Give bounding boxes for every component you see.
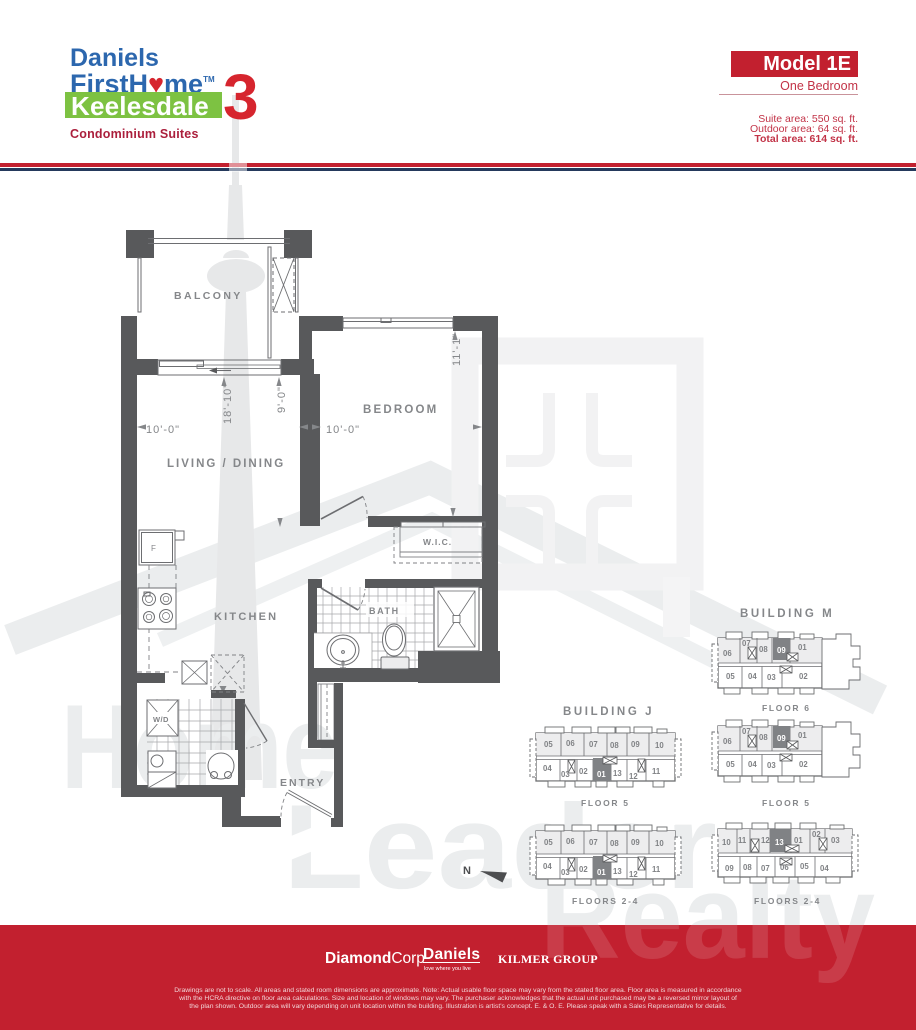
svg-text:04: 04 bbox=[820, 864, 829, 873]
svg-text:09: 09 bbox=[725, 864, 734, 873]
svg-text:KITCHEN: KITCHEN bbox=[214, 611, 278, 623]
svg-text:07: 07 bbox=[761, 864, 770, 873]
svg-text:05: 05 bbox=[800, 862, 809, 871]
svg-text:18'-10": 18'-10" bbox=[222, 383, 234, 424]
svg-text:BUILDING M: BUILDING M bbox=[740, 608, 834, 620]
svg-text:BUILDING J: BUILDING J bbox=[563, 706, 654, 718]
svg-text:FLOORS 2-4: FLOORS 2-4 bbox=[754, 896, 821, 906]
svg-text:FLOORS 2-4: FLOORS 2-4 bbox=[572, 896, 639, 906]
svg-text:FLOOR 6: FLOOR 6 bbox=[762, 703, 811, 713]
svg-text:12: 12 bbox=[761, 836, 770, 845]
svg-text:FLOOR 5: FLOOR 5 bbox=[762, 798, 811, 808]
svg-text:10'-0": 10'-0" bbox=[326, 424, 360, 436]
svg-text:08: 08 bbox=[743, 863, 752, 872]
svg-text:9'-0": 9'-0" bbox=[276, 386, 288, 413]
svg-text:11'-1": 11'-1" bbox=[451, 333, 463, 366]
svg-text:LIVING / DINING: LIVING / DINING bbox=[167, 458, 285, 470]
svg-text:10: 10 bbox=[722, 838, 731, 847]
svg-text:W/D: W/D bbox=[153, 715, 169, 724]
svg-text:11: 11 bbox=[738, 836, 747, 845]
svg-text:N: N bbox=[463, 865, 471, 877]
svg-text:02: 02 bbox=[812, 830, 821, 839]
svg-text:BEDROOM: BEDROOM bbox=[363, 404, 438, 416]
svg-text:03: 03 bbox=[831, 836, 840, 845]
svg-text:BALCONY: BALCONY bbox=[174, 290, 243, 302]
svg-text:W.I.C.: W.I.C. bbox=[423, 537, 452, 547]
svg-text:01: 01 bbox=[794, 836, 803, 845]
svg-text:F: F bbox=[151, 544, 156, 553]
svg-text:FLOOR 5: FLOOR 5 bbox=[581, 798, 630, 808]
svg-text:13: 13 bbox=[775, 838, 784, 847]
svg-text:ENTRY: ENTRY bbox=[280, 777, 325, 789]
svg-text:BATH: BATH bbox=[369, 606, 400, 616]
svg-text:10'-0": 10'-0" bbox=[146, 424, 180, 436]
svg-text:06: 06 bbox=[780, 863, 789, 872]
